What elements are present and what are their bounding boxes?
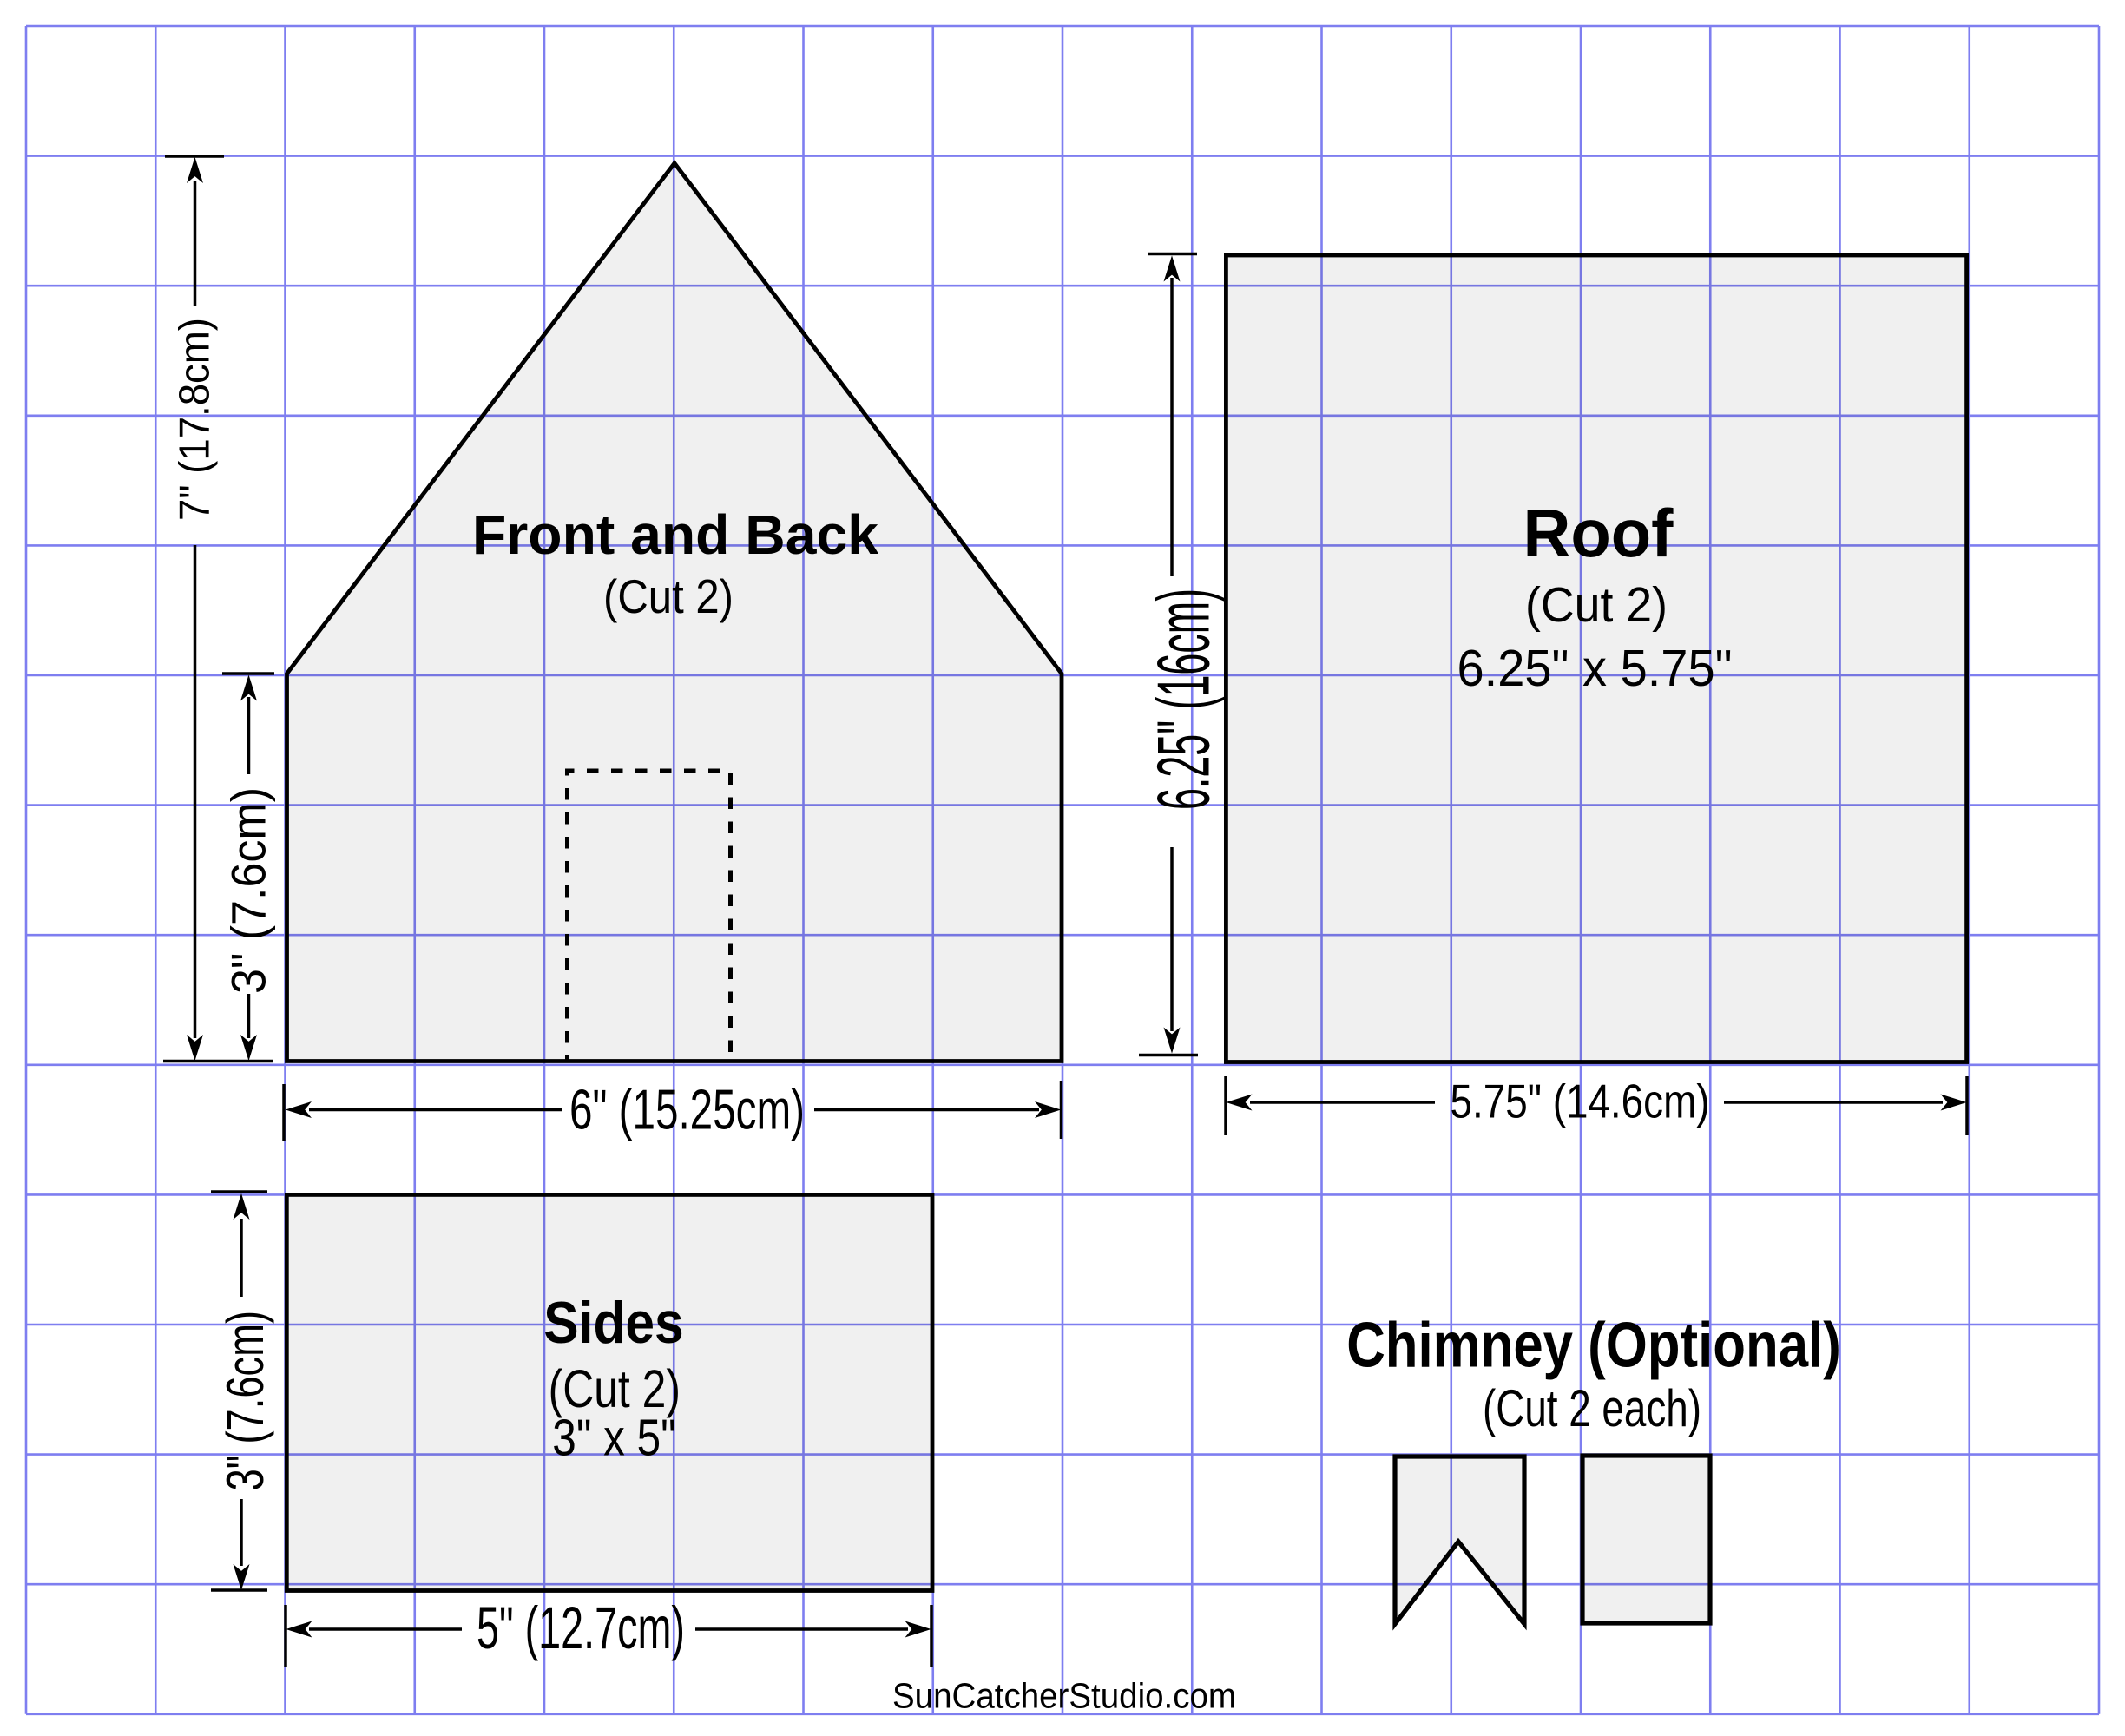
svg-text:SunCatcherStudio.com: SunCatcherStudio.com — [892, 1675, 1236, 1715]
svg-text:5" (12.7cm): 5" (12.7cm) — [477, 1595, 685, 1661]
svg-text:3" (7.6cm): 3" (7.6cm) — [221, 787, 276, 994]
svg-text:Roof: Roof — [1523, 495, 1674, 571]
svg-text:6" (15.25cm): 6" (15.25cm) — [569, 1078, 805, 1141]
svg-text:(Cut 2): (Cut 2) — [1525, 577, 1668, 633]
svg-text:(Cut 2): (Cut 2) — [603, 570, 734, 623]
svg-text:3" x 5": 3" x 5" — [552, 1409, 675, 1466]
svg-text:(Cut 2 each): (Cut 2 each) — [1483, 1379, 1701, 1437]
svg-text:6.25" (16cm): 6.25" (16cm) — [1143, 589, 1226, 810]
svg-text:7" (17.8cm): 7" (17.8cm) — [172, 318, 219, 521]
svg-text:5.75" (14.6cm): 5.75" (14.6cm) — [1451, 1075, 1710, 1128]
svg-text:Sides: Sides — [543, 1291, 683, 1356]
svg-text:Chimney (Optional): Chimney (Optional) — [1346, 1308, 1841, 1380]
svg-text:3" (7.6cm): 3" (7.6cm) — [216, 1311, 274, 1491]
svg-text:Front and Back: Front and Back — [472, 503, 878, 566]
svg-text:6.25" x 5.75": 6.25" x 5.75" — [1457, 640, 1733, 697]
